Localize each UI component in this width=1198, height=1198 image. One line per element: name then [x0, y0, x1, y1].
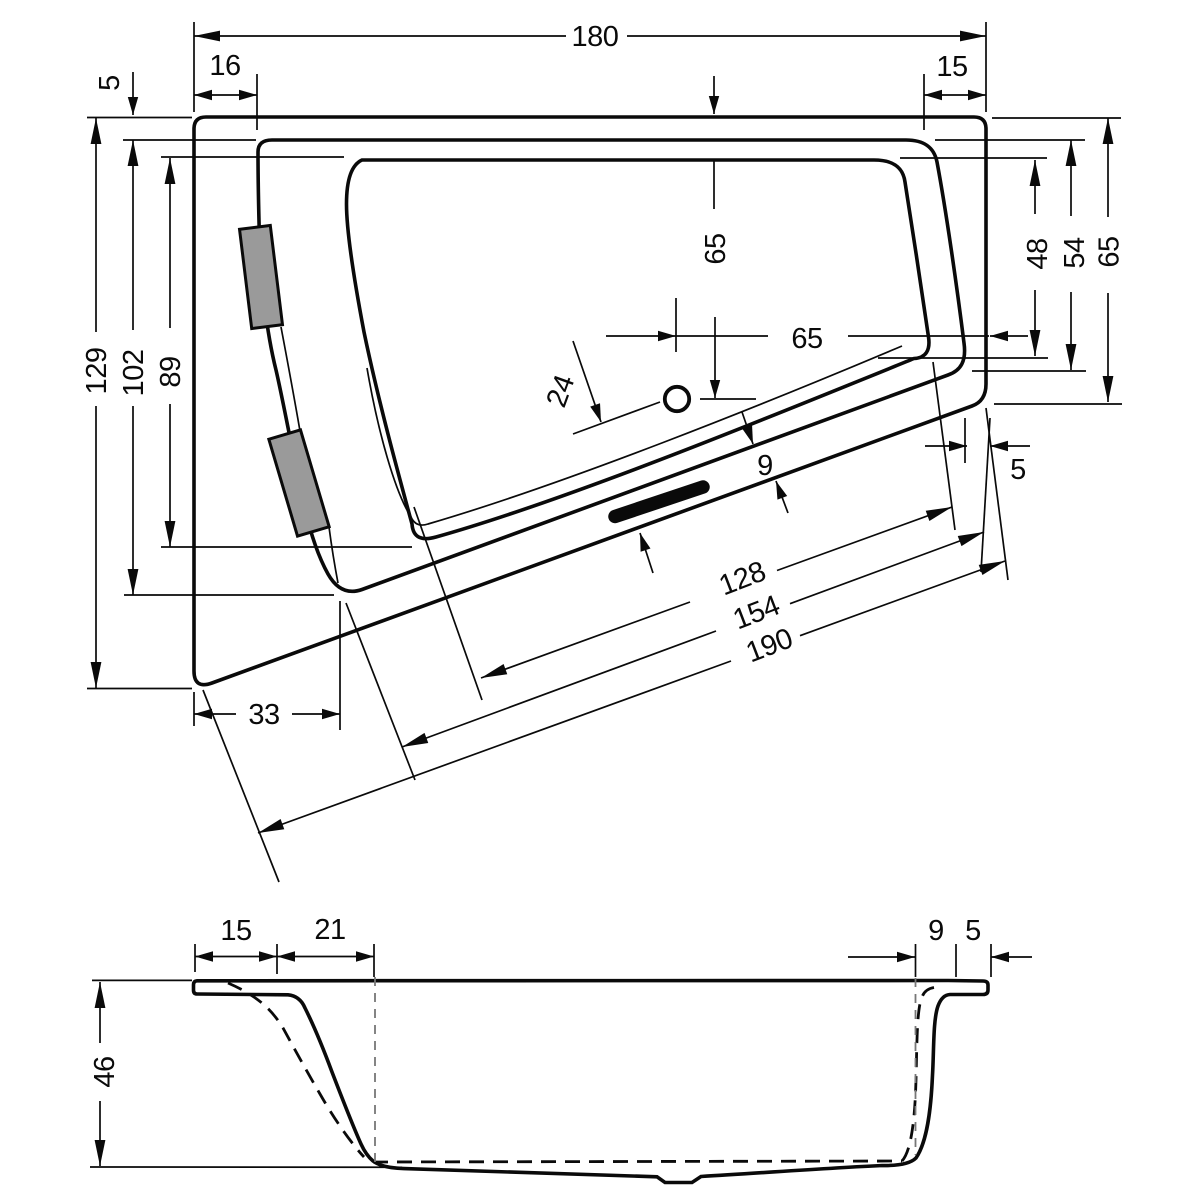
svg-text:21: 21 [314, 914, 345, 946]
svg-text:5: 5 [1010, 454, 1026, 486]
svg-text:129: 129 [81, 348, 113, 395]
svg-text:5: 5 [94, 75, 126, 91]
svg-text:65: 65 [791, 323, 822, 355]
svg-text:33: 33 [248, 699, 279, 731]
svg-text:15: 15 [220, 915, 251, 947]
svg-text:65: 65 [700, 233, 732, 264]
svg-text:9: 9 [928, 915, 944, 947]
svg-text:5: 5 [965, 915, 981, 947]
svg-text:15: 15 [936, 51, 967, 83]
svg-text:16: 16 [209, 50, 240, 82]
svg-text:48: 48 [1022, 238, 1054, 269]
svg-text:9: 9 [757, 450, 773, 482]
svg-text:46: 46 [89, 1056, 121, 1087]
svg-text:180: 180 [572, 21, 619, 53]
svg-text:65: 65 [1094, 236, 1126, 267]
svg-text:89: 89 [155, 356, 187, 387]
svg-text:102: 102 [118, 350, 150, 397]
svg-text:54: 54 [1059, 237, 1091, 269]
